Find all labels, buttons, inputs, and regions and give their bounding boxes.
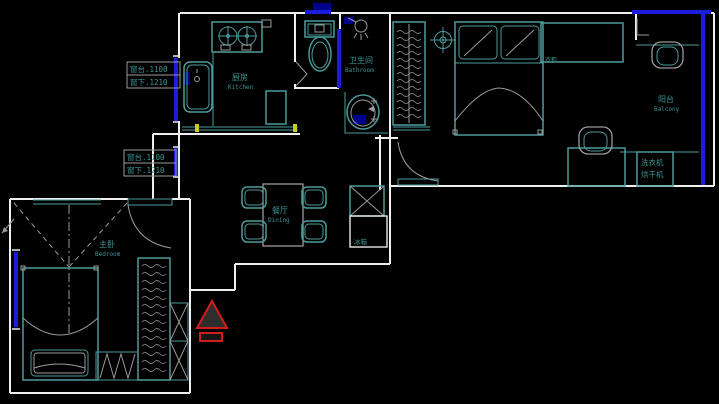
wardrobe-icon: [393, 22, 430, 130]
washer-dryer-icon: 洗衣机 烘干机: [637, 152, 673, 186]
toilet-icon: [305, 21, 334, 71]
sliding-door-track: [182, 127, 298, 130]
pipe-icon: [637, 19, 649, 35]
cabinet-label: 衣柜: [545, 56, 557, 64]
desk-chair-icon: [579, 127, 612, 154]
window-annotation-bottom: 窗台.1100 窗下.1210: [124, 150, 176, 176]
wardrobe-icon: [138, 258, 170, 380]
bedroom-master: 主卧 Bedroom: [2, 199, 188, 380]
double-bed-icon: [453, 22, 543, 135]
floor-plan-drawing: 厨房 Kitchen 卫生间 Bathroom: [0, 0, 719, 404]
dining: 冰箱 餐厅 Dining: [242, 184, 387, 247]
door-tick: [293, 124, 297, 132]
shelf-icon: [96, 352, 138, 380]
dining-label-en: Dining: [268, 217, 290, 224]
dining-chair-icon: [302, 187, 326, 208]
kitchen-outlet-box: [262, 20, 271, 27]
sink-icon: [184, 62, 212, 112]
toilet-door: [296, 62, 307, 86]
door-tick: [195, 124, 199, 132]
ceiling-light-icon: [430, 27, 456, 53]
kitchen-cabinet: [266, 91, 286, 124]
shaft-icon: [350, 186, 384, 216]
windows: [12, 3, 711, 329]
leader-arrow-icon: [2, 219, 14, 233]
bathroom: 卫生间 Bathroom: [296, 18, 388, 133]
window-note-line2: 窗下.1210: [130, 77, 168, 87]
balcony-label-zh: 阳台: [658, 94, 674, 104]
bedroom-north: 衣柜: [393, 22, 625, 186]
window-annotation-top: 窗台.1100 窗下.1210: [127, 62, 180, 88]
washer-label-line2: 烘干机: [641, 169, 664, 179]
window-end-caps: [12, 56, 180, 329]
cad-canvas[interactable]: 厨房 Kitchen 卫生间 Bathroom: [0, 0, 719, 404]
curtain-box: [33, 200, 101, 204]
vent-box-icon: [313, 3, 331, 10]
window-note-line1: 窗台.1100: [127, 152, 165, 162]
dining-label-zh: 餐厅: [272, 206, 288, 215]
dining-chair-icon: [302, 221, 326, 242]
fridge-label: 冰箱: [354, 237, 368, 246]
bedroom-label-en: Bedroom: [95, 251, 121, 258]
kitchen-label-en: Kitchen: [228, 84, 254, 91]
dining-table-icon: [263, 184, 303, 246]
bedroom-label-zh: 主卧: [99, 239, 115, 249]
entry-arrow-icon: [197, 301, 227, 341]
bedroom-door-icon: [128, 199, 172, 248]
washer-label-line1: 洗衣机: [641, 157, 664, 167]
window-note-line1: 窗台.1100: [130, 64, 168, 74]
headboard-cabinet: 衣柜: [541, 23, 623, 64]
window-note-line2: 窗下.1210: [127, 165, 165, 175]
bed-icon: [21, 266, 98, 380]
balcony-chair-icon: [652, 42, 683, 68]
side-cabinet-icon: [170, 303, 188, 380]
bathroom-label-en: Bathroom: [345, 67, 374, 74]
balcony: 洗衣机 烘干机 阳台 Balcony: [620, 19, 699, 186]
stove-burner-icon: [218, 26, 257, 46]
stove-knob: [221, 45, 230, 50]
kitchen-label-zh: 厨房: [232, 72, 248, 82]
kitchen: 厨房 Kitchen: [182, 20, 298, 132]
bathroom-label-zh: 卫生间: [349, 55, 373, 65]
bedroom-door-icon: [398, 142, 438, 185]
balcony-label-en: Balcony: [654, 106, 680, 113]
